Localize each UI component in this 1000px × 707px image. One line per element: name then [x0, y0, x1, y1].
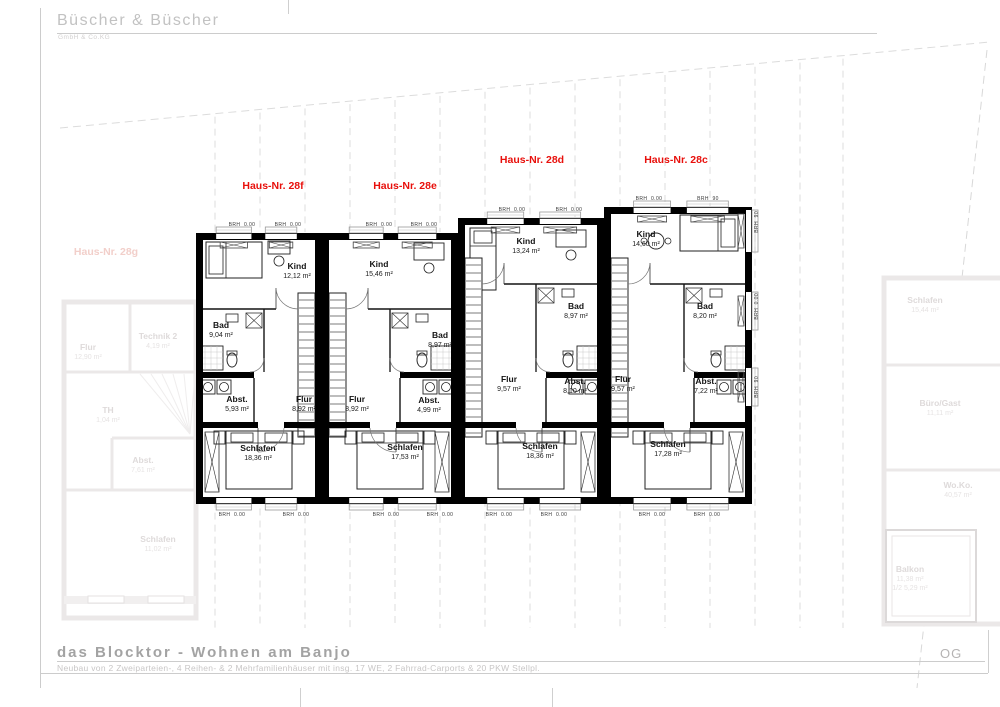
room-area: 9,57 m²: [497, 385, 521, 394]
fold-mark-top: [288, 0, 289, 14]
room-name: Schlafen: [140, 534, 175, 545]
room-label-28f-schlafen: Schlafen18,36 m²: [240, 443, 275, 463]
room-area: 18,36 m²: [522, 452, 557, 461]
room-name: Technik 2: [139, 331, 178, 342]
header-rule: [57, 33, 877, 34]
brh-annotation: BRH 0.00: [694, 512, 721, 518]
room-area: 9,04 m²: [209, 331, 233, 340]
room-area: 9,57 m²: [611, 385, 635, 394]
room-label-28e-schlafen: Schlafen17,53 m²: [387, 442, 422, 462]
room-label-28d-abst: Abst.8,10 m²: [563, 376, 587, 396]
project-subtitle: Neubau von 2 Zweiparteien-, 4 Reihen- & …: [57, 663, 540, 673]
brh-annotation: BRH 0.00: [373, 512, 400, 518]
room-label-28c-bad: Bad8,20 m²: [693, 301, 717, 321]
fold-mark-bottom-right: [552, 688, 553, 707]
room-area: 18,36 m²: [240, 454, 275, 463]
room-area: 12,12 m²: [283, 272, 311, 281]
room-area: 11,11 m²: [919, 409, 960, 418]
room-name: Abst.: [225, 394, 249, 405]
title-underline: [57, 661, 985, 662]
room-name: Schlafen: [650, 439, 685, 450]
drawing-sheet: Büscher & Büscher GmbH & Co.KG Haus-Nr. …: [0, 0, 1000, 707]
room-label-28g-technik: Technik 24,19 m²: [139, 331, 178, 351]
room-area: 11,02 m²: [140, 545, 175, 554]
brh-annotation: BRH 0.00: [283, 512, 310, 518]
room-area: 8,10 m²: [563, 387, 587, 396]
room-area: 17,28 m²: [650, 450, 685, 459]
brh-annotation: BRH 0.00: [636, 196, 663, 202]
room-label-28g-abst: Abst.7,61 m²: [131, 455, 155, 475]
room-label-28g-th: TH1,04 m²: [96, 405, 120, 425]
fold-mark-bottom-left: [300, 688, 301, 707]
room-name: TH: [96, 405, 120, 416]
company-legal-form: GmbH & Co.KG: [58, 34, 110, 41]
brh-annotation: BRH 90: [754, 376, 760, 398]
house-label-28f: Haus-Nr. 28f: [242, 180, 303, 192]
frame-corner-mark: [988, 630, 989, 673]
room-area-half: 1/2 5,29 m²: [892, 584, 927, 593]
brh-annotation: BRH 0.00: [486, 512, 513, 518]
room-label-right-buero: Büro/Gast11,11 m²: [919, 398, 960, 418]
company-name: Büscher & Büscher: [57, 12, 219, 30]
room-label-28f-flur: Flur8,92 m²: [292, 394, 316, 414]
house-label-28c: Haus-Nr. 28c: [644, 154, 708, 166]
house-label-28e: Haus-Nr. 28e: [373, 180, 437, 192]
room-name: Büro/Gast: [919, 398, 960, 409]
room-label-28e-bad: Bad8,97 m²: [428, 330, 452, 350]
brh-annotation: BRH 0.00: [639, 512, 666, 518]
room-name: Bad: [693, 301, 717, 312]
brh-annotation: BRH 0.00: [556, 207, 583, 213]
room-label-28c-flur: Flur9,57 m²: [611, 374, 635, 394]
room-name: Flur: [497, 374, 521, 385]
room-label-28c-kind: Kind14,60 m²: [632, 229, 660, 249]
room-area: 15,46 m²: [365, 270, 393, 279]
floor-plan-drawing: [0, 0, 1000, 707]
room-area: 11,38 m²: [892, 575, 927, 584]
room-label-right-balkon: Balkon11,38 m²1/2 5,29 m²: [892, 564, 927, 593]
house-28d-plan: [458, 212, 604, 510]
brh-annotation: BRH 0.00: [754, 293, 760, 320]
room-label-28f-abst: Abst.5,93 m²: [225, 394, 249, 414]
room-label-28d-bad: Bad8,97 m²: [564, 301, 588, 321]
room-label-right-schlafen: Schlafen15,44 m²: [907, 295, 942, 315]
brh-annotation: BRH 0.00: [366, 222, 393, 228]
room-name: Abst.: [563, 376, 587, 387]
room-area: 15,44 m²: [907, 306, 942, 315]
room-name: Bad: [428, 330, 452, 341]
brh-annotation: BRH 0.00: [427, 512, 454, 518]
room-label-28d-schlafen: Schlafen18,36 m²: [522, 441, 557, 461]
floor-indicator: OG: [940, 646, 962, 661]
room-area: 40,57 m²: [943, 491, 972, 500]
room-area: 7,22 m²: [694, 387, 718, 396]
room-name: Kind: [365, 259, 393, 270]
room-name: Bad: [564, 301, 588, 312]
room-label-28e-kind: Kind15,46 m²: [365, 259, 393, 279]
room-area: 4,99 m²: [417, 406, 441, 415]
room-name: Kind: [283, 261, 311, 272]
room-name: Schlafen: [522, 441, 557, 452]
room-area: 8,97 m²: [564, 312, 588, 321]
house-label-28d: Haus-Nr. 28d: [500, 154, 564, 166]
room-area: 8,97 m²: [428, 341, 452, 350]
room-area: 7,61 m²: [131, 466, 155, 475]
room-name: Abst.: [694, 376, 718, 387]
footer-rule: [40, 673, 988, 674]
room-area: 13,24 m²: [512, 247, 540, 256]
room-name: Kind: [632, 229, 660, 240]
brh-annotation: BRH 0.00: [229, 222, 256, 228]
room-label-28e-abst: Abst.4,99 m²: [417, 395, 441, 415]
room-name: Bad: [209, 320, 233, 331]
room-label-28g-schlafen: Schlafen11,02 m²: [140, 534, 175, 554]
brh-annotation: BRH 0.00: [499, 207, 526, 213]
room-area: 14,60 m²: [632, 240, 660, 249]
room-name: Flur: [74, 342, 102, 353]
room-area: 8,92 m²: [292, 405, 316, 414]
brh-annotation: BRH 0.00: [275, 222, 302, 228]
room-area: 8,20 m²: [693, 312, 717, 321]
room-name: Abst.: [417, 395, 441, 406]
room-label-28f-kind: Kind12,12 m²: [283, 261, 311, 281]
room-name: Abst.: [131, 455, 155, 466]
left-border-rule: [40, 8, 41, 688]
brh-annotation: BRH 0.00: [411, 222, 438, 228]
room-label-28e-flur: Flur8,92 m²: [345, 394, 369, 414]
brh-annotation: BRH 0.00: [541, 512, 568, 518]
room-label-28c-schlafen: Schlafen17,28 m²: [650, 439, 685, 459]
room-area: 5,93 m²: [225, 405, 249, 414]
room-label-right-woko: Wo.Ko.40,57 m²: [943, 480, 972, 500]
room-area: 12,90 m²: [74, 353, 102, 362]
room-label-28g-flur: Flur12,90 m²: [74, 342, 102, 362]
room-name: Balkon: [892, 564, 927, 575]
room-area: 17,53 m²: [387, 453, 422, 462]
room-name: Flur: [611, 374, 635, 385]
house-label-28g: Haus-Nr. 28g: [74, 246, 138, 258]
brh-annotation: BRH 90: [754, 211, 760, 233]
room-name: Kind: [512, 236, 540, 247]
brh-annotation: BRH 0.00: [219, 512, 246, 518]
house-28c-plan: [604, 201, 758, 510]
room-label-28c-abst: Abst.7,22 m²: [694, 376, 718, 396]
room-name: Schlafen: [907, 295, 942, 306]
room-area: 1,04 m²: [96, 416, 120, 425]
room-label-28f-bad: Bad9,04 m²: [209, 320, 233, 340]
room-name: Flur: [345, 394, 369, 405]
brh-annotation: BRH 90: [697, 196, 719, 202]
room-name: Wo.Ko.: [943, 480, 972, 491]
room-area: 8,92 m²: [345, 405, 369, 414]
room-area: 4,19 m²: [139, 342, 178, 351]
room-label-28d-flur: Flur9,57 m²: [497, 374, 521, 394]
room-name: Schlafen: [387, 442, 422, 453]
project-title: das Blocktor - Wohnen am Banjo: [57, 644, 352, 661]
room-label-28d-kind: Kind13,24 m²: [512, 236, 540, 256]
room-name: Schlafen: [240, 443, 275, 454]
room-name: Flur: [292, 394, 316, 405]
